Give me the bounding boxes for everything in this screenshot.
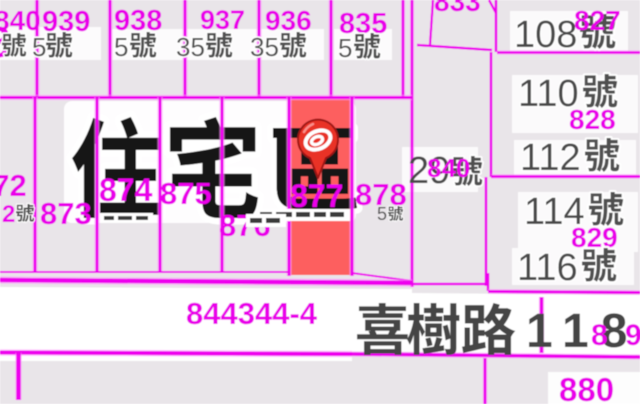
svg-text:5: 5: [32, 32, 46, 62]
svg-text:827: 827: [574, 5, 621, 36]
svg-text:875: 875: [160, 176, 212, 211]
svg-text:877: 877: [290, 178, 343, 214]
svg-text:872: 872: [0, 168, 27, 203]
svg-text:118: 118: [526, 305, 639, 358]
svg-text:844344-4: 844344-4: [186, 296, 318, 331]
svg-text:5: 5: [377, 204, 387, 224]
svg-text:8: 8: [591, 319, 608, 352]
svg-text:833: 833: [434, 0, 481, 17]
svg-text:5: 5: [338, 33, 352, 63]
svg-text:35: 35: [176, 32, 205, 62]
svg-text:5: 5: [114, 32, 128, 62]
svg-text:108: 108: [514, 14, 577, 56]
svg-text:840: 840: [427, 153, 470, 183]
svg-text:2: 2: [2, 201, 15, 228]
svg-text:880: 880: [559, 371, 614, 404]
svg-text:874: 874: [99, 172, 153, 208]
svg-text:35: 35: [250, 32, 279, 62]
svg-text:9: 9: [625, 319, 640, 352]
svg-text:828: 828: [569, 104, 616, 135]
svg-text:116: 116: [517, 247, 578, 289]
svg-text:873: 873: [40, 196, 92, 231]
svg-text:112: 112: [520, 137, 581, 179]
